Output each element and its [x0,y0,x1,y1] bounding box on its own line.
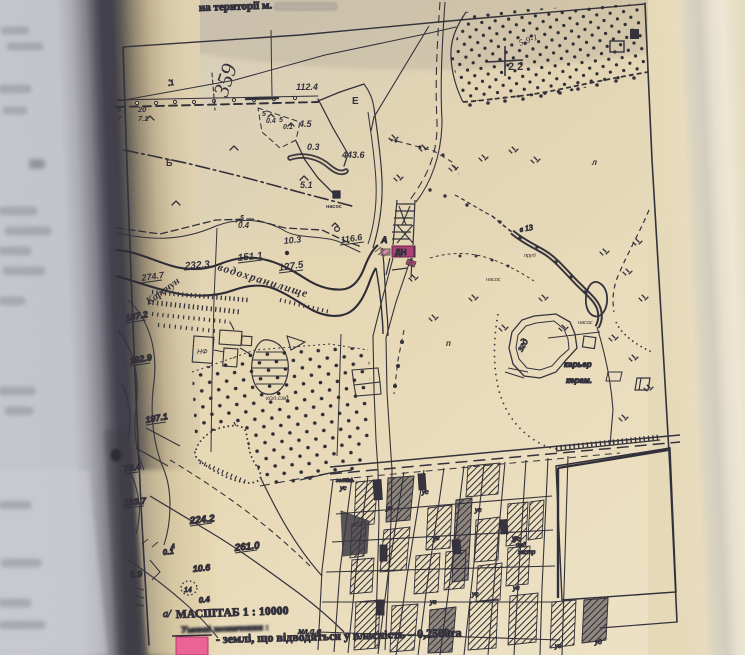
svg-text:112.4: 112.4 [296,82,318,92]
svg-text:насос: насос [578,320,593,326]
svg-text:ус: ус [513,536,521,543]
svg-text:4.5: 4.5 [298,119,313,129]
svg-text:ус: ус [429,599,437,606]
svg-text:10.3: 10.3 [283,234,301,246]
svg-text:0.4: 0.4 [266,118,276,125]
svg-text:7.1: 7.1 [138,114,148,123]
svg-text:Е: Е [352,96,359,107]
svg-text:2 2: 2 2 [508,61,523,73]
svg-text:залежь: залежь [335,478,354,484]
svg-text:5: 5 [240,215,244,222]
svg-text:ус: ус [339,485,347,492]
svg-text:0.1: 0.1 [283,124,293,131]
svg-text:10.6: 10.6 [192,562,211,574]
svg-text:НФ: НФ [197,349,208,356]
svg-text:а/: а/ [163,609,172,620]
svg-text:ус: ус [474,507,482,514]
svg-text:ус: ус [385,505,393,512]
svg-text:А: А [380,235,388,245]
svg-text:5.1: 5.1 [300,180,313,190]
svg-text:насос: насос [486,277,501,283]
svg-text:керам.: керам. [566,376,592,385]
svg-text:5: 5 [279,117,283,124]
svg-text:ус: ус [432,535,440,542]
svg-text:0.3: 0.3 [307,142,320,152]
svg-text:застр: застр [517,550,536,556]
svg-text:∧: ∧ [170,543,175,550]
svg-text:5.9: 5.9 [129,569,142,580]
svg-text:ДН: ДН [395,248,407,257]
svg-text:Б: Б [166,158,173,168]
svg-text:насос: насос [326,204,342,210]
svg-text:уд: уд [594,638,602,646]
svg-text:20: 20 [137,105,147,114]
svg-text:0.4: 0.4 [198,595,211,605]
svg-text:443.6: 443.6 [341,150,366,160]
svg-text:0.4: 0.4 [238,221,250,230]
svg-text:пруд: пруд [524,253,536,259]
svg-text:п: п [446,339,451,348]
svg-text:ус: ус [421,489,429,496]
svg-text:л: л [591,158,597,167]
svg-text:14: 14 [184,587,192,594]
svg-text:ус: ус [471,591,479,598]
svg-text:5: 5 [262,111,266,118]
svg-text:карьер: карьер [564,360,592,369]
svg-text:инд: инд [516,543,527,549]
svg-text:ус: ус [554,643,562,650]
svg-text:ус: ус [512,585,520,592]
